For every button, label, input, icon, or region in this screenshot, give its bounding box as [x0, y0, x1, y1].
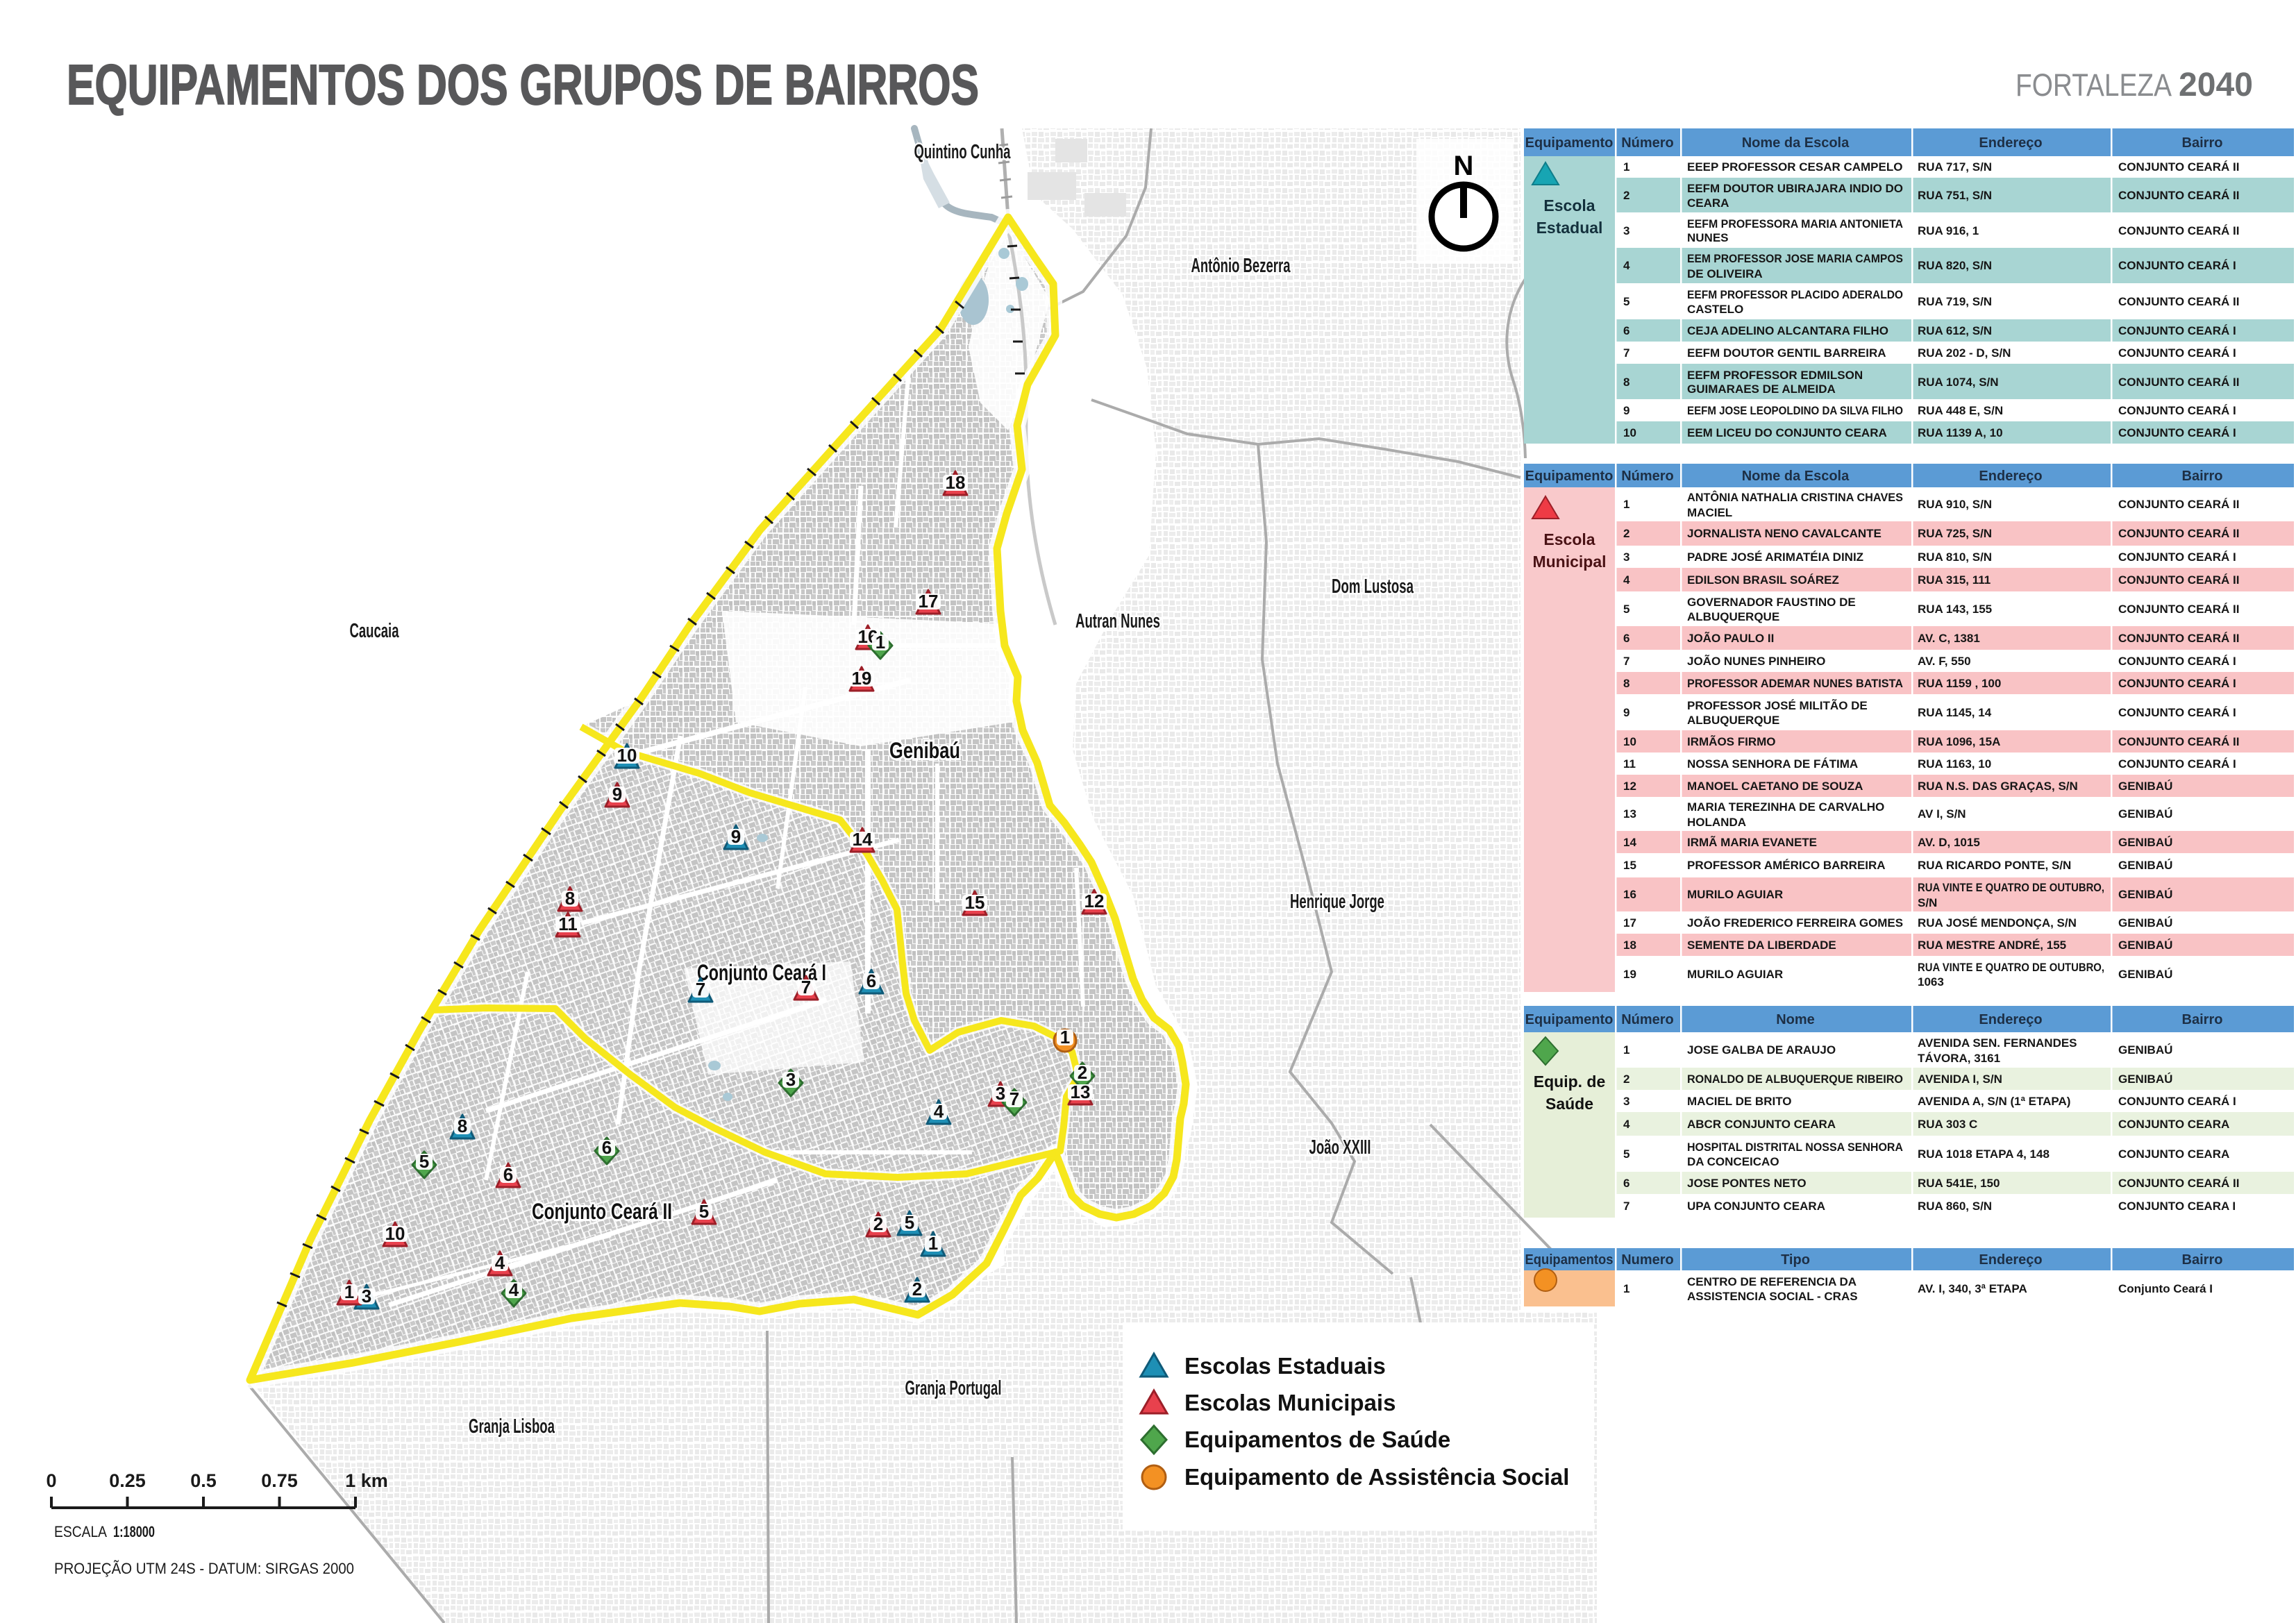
svg-text:Número: Número — [1621, 1012, 1674, 1027]
svg-text:ALBUQUERQUE: ALBUQUERQUE — [1687, 610, 1779, 623]
svg-text:5: 5 — [1623, 295, 1629, 308]
svg-text:EEFM JOSE LEOPOLDINO DA SILVA: EEFM JOSE LEOPOLDINO DA SILVA FILHO — [1687, 404, 1903, 417]
svg-text:Conjunto Ceará II: Conjunto Ceará II — [532, 1199, 672, 1224]
svg-text:5: 5 — [1623, 1147, 1629, 1161]
svg-text:13: 13 — [1623, 807, 1636, 821]
svg-text:GOVERNADOR FAUSTINO DE: GOVERNADOR FAUSTINO DE — [1687, 596, 1856, 609]
svg-text:19: 19 — [852, 668, 872, 689]
svg-text:10: 10 — [617, 745, 637, 766]
svg-text:Endereço: Endereço — [1979, 1252, 2042, 1268]
svg-text:RUA JOSÉ MENDONÇA, S/N: RUA JOSÉ MENDONÇA, S/N — [1918, 916, 2077, 930]
svg-text:MANOEL CAETANO DE SOUZA: MANOEL CAETANO DE SOUZA — [1687, 780, 1863, 793]
svg-text:RUA 820, S/N: RUA 820, S/N — [1918, 259, 1992, 272]
svg-text:CONJUNTO CEARÁ I: CONJUNTO CEARÁ I — [2118, 1095, 2236, 1108]
svg-text:5: 5 — [419, 1151, 429, 1172]
svg-text:4: 4 — [934, 1101, 944, 1122]
svg-text:0.25: 0.25 — [109, 1470, 146, 1491]
svg-text:AV I, S/N: AV I, S/N — [1918, 807, 1966, 821]
svg-text:PROFESSOR JOSÉ MILITÃO DE: PROFESSOR JOSÉ MILITÃO DE — [1687, 698, 1868, 712]
svg-text:TÁVORA, 3161: TÁVORA, 3161 — [1918, 1052, 2000, 1065]
svg-text:4: 4 — [495, 1252, 505, 1273]
svg-text:Bairro: Bairro — [2182, 1252, 2223, 1268]
svg-text:2: 2 — [873, 1213, 883, 1234]
svg-text:Nome da Escola: Nome da Escola — [1742, 469, 1850, 484]
svg-text:GUIMARAES DE ALMEIDA: GUIMARAES DE ALMEIDA — [1687, 382, 1836, 396]
svg-text:Equip. de: Equip. de — [1534, 1073, 1606, 1091]
svg-text:DA CONCEICAO: DA CONCEICAO — [1687, 1155, 1779, 1168]
svg-text:Dom Lustosa: Dom Lustosa — [1332, 575, 1414, 598]
svg-text:MACIEL: MACIEL — [1687, 506, 1732, 519]
svg-text:Tipo: Tipo — [1781, 1252, 1810, 1268]
svg-text:4: 4 — [1623, 573, 1630, 587]
svg-text:16: 16 — [1623, 888, 1636, 901]
svg-text:1 km: 1 km — [345, 1470, 388, 1491]
svg-text:EQUIPAMENTOS DOS GRUPOS DE BAI: EQUIPAMENTOS DOS GRUPOS DE BAIRROS — [67, 53, 979, 117]
svg-text:Caucaia: Caucaia — [350, 620, 400, 642]
svg-text:7: 7 — [1009, 1088, 1019, 1109]
svg-text:Quintino Cunha: Quintino Cunha — [914, 141, 1012, 163]
svg-text:EEFM PROFESSORA MARIA ANTONIET: EEFM PROFESSORA MARIA ANTONIETA — [1687, 217, 1903, 230]
svg-text:Granja Portugal: Granja Portugal — [905, 1377, 1002, 1399]
svg-text:RUA 717, S/N: RUA 717, S/N — [1918, 160, 1992, 174]
svg-text:GENIBAÚ: GENIBAÚ — [2118, 1073, 2172, 1086]
svg-text:1: 1 — [1623, 160, 1629, 174]
svg-text:3: 3 — [786, 1069, 796, 1090]
svg-text:JORNALISTA NENO CAVALCANTE: JORNALISTA NENO CAVALCANTE — [1687, 527, 1882, 540]
svg-text:1: 1 — [875, 632, 885, 653]
svg-text:EEEP PROFESSOR CESAR CAMPELO: EEEP PROFESSOR CESAR CAMPELO — [1687, 160, 1902, 174]
svg-text:1:18000: 1:18000 — [113, 1523, 155, 1540]
svg-text:17: 17 — [1623, 916, 1636, 930]
svg-text:3: 3 — [1623, 224, 1629, 237]
svg-text:GENIBAÚ: GENIBAÚ — [2118, 968, 2172, 981]
svg-text:4: 4 — [1623, 1118, 1630, 1131]
svg-text:CONJUNTO CEARÁ II: CONJUNTO CEARÁ II — [2118, 735, 2239, 748]
svg-text:RUA 719, S/N: RUA 719, S/N — [1918, 295, 1992, 308]
svg-text:Antônio Bezerra: Antônio Bezerra — [1191, 255, 1291, 277]
svg-text:Endereço: Endereço — [1979, 135, 2042, 151]
svg-text:2: 2 — [1623, 189, 1629, 202]
svg-text:NUNES: NUNES — [1687, 231, 1729, 244]
svg-text:RUA 1096, 15A: RUA 1096, 15A — [1918, 735, 2000, 748]
svg-text:AV. C, 1381: AV. C, 1381 — [1918, 632, 1980, 645]
svg-text:João XXIII: João XXIII — [1309, 1136, 1371, 1159]
svg-text:RUA RICARDO PONTE, S/N: RUA RICARDO PONTE, S/N — [1918, 859, 2071, 872]
svg-text:EEFM PROFESSOR PLACIDO ADERALD: EEFM PROFESSOR PLACIDO ADERALDO — [1687, 288, 1903, 301]
svg-text:Escola: Escola — [1543, 196, 1595, 215]
svg-text:9: 9 — [731, 826, 741, 847]
svg-text:Henrique Jorge: Henrique Jorge — [1290, 891, 1384, 913]
svg-text:4: 4 — [1623, 259, 1630, 272]
svg-text:7: 7 — [696, 979, 705, 1000]
svg-text:8: 8 — [1623, 376, 1629, 389]
svg-text:2: 2 — [1078, 1062, 1087, 1083]
svg-text:15: 15 — [1623, 859, 1636, 872]
svg-text:CONJUNTO CEARÁ II: CONJUNTO CEARÁ II — [2118, 573, 2239, 587]
svg-text:18: 18 — [946, 472, 966, 493]
svg-text:JOÃO NUNES PINHEIRO: JOÃO NUNES PINHEIRO — [1687, 654, 1825, 668]
svg-text:1: 1 — [1623, 1282, 1629, 1295]
svg-text:12: 12 — [1084, 891, 1105, 911]
svg-text:EEFM DOUTOR GENTIL BARREIRA: EEFM DOUTOR GENTIL BARREIRA — [1687, 346, 1886, 360]
svg-text:5: 5 — [905, 1212, 914, 1233]
svg-text:CONJUNTO CEARÁ I: CONJUNTO CEARÁ I — [2118, 324, 2236, 337]
svg-text:CONJUNTO CEARÁ II: CONJUNTO CEARÁ II — [2118, 376, 2239, 389]
svg-text:RUA 916, 1: RUA 916, 1 — [1918, 224, 1979, 237]
svg-text:RUA 860, S/N: RUA 860, S/N — [1918, 1200, 1992, 1213]
svg-text:11: 11 — [1623, 757, 1636, 771]
svg-text:5: 5 — [699, 1201, 709, 1222]
svg-text:3: 3 — [996, 1083, 1005, 1104]
svg-text:Saúde: Saúde — [1545, 1095, 1593, 1113]
svg-text:AVENIDA I, S/N: AVENIDA I, S/N — [1918, 1073, 2002, 1086]
svg-text:RUA 810, S/N: RUA 810, S/N — [1918, 550, 1992, 564]
svg-text:MACIEL DE BRITO: MACIEL DE BRITO — [1687, 1095, 1792, 1108]
svg-text:JOSE GALBA DE ARAUJO: JOSE GALBA DE ARAUJO — [1687, 1043, 1836, 1057]
svg-text:Genibaú: Genibaú — [889, 738, 960, 763]
svg-text:Numero: Numero — [1621, 1252, 1674, 1268]
svg-text:EEFM DOUTOR UBIRAJARA INDIO DO: EEFM DOUTOR UBIRAJARA INDIO DO — [1687, 182, 1903, 195]
svg-text:7: 7 — [1623, 1200, 1629, 1213]
svg-text:6: 6 — [1623, 632, 1629, 645]
svg-text:3: 3 — [1623, 1095, 1629, 1108]
svg-text:Equipamentos: Equipamentos — [1525, 1252, 1614, 1268]
svg-text:EEFM PROFESSOR EDMILSON: EEFM PROFESSOR EDMILSON — [1687, 369, 1863, 382]
svg-text:EEM PROFESSOR JOSE MARIA CAMPO: EEM PROFESSOR JOSE MARIA CAMPOS — [1687, 252, 1903, 265]
svg-text:SEMENTE DA LIBERDADE: SEMENTE DA LIBERDADE — [1687, 939, 1836, 952]
svg-text:0.75: 0.75 — [261, 1470, 298, 1491]
svg-text:CONJUNTO CEARÁ I: CONJUNTO CEARÁ I — [2118, 677, 2236, 690]
svg-text:Estadual: Estadual — [1536, 219, 1603, 237]
svg-text:RUA 448 E, S/N: RUA 448 E, S/N — [1918, 404, 2003, 417]
svg-text:RUA 202 - D, S/N: RUA 202 - D, S/N — [1918, 346, 2011, 360]
svg-text:CENTRO DE REFERENCIA DA: CENTRO DE REFERENCIA DA — [1687, 1275, 1857, 1288]
svg-text:PADRE JOSÉ ARIMATÉIA DINIZ: PADRE JOSÉ ARIMATÉIA DINIZ — [1687, 550, 1863, 564]
svg-text:CONJUNTO CEARÁ II: CONJUNTO CEARÁ II — [2118, 295, 2239, 308]
svg-text:AV. D, 1015: AV. D, 1015 — [1918, 836, 1980, 849]
svg-text:ANTÔNIA NATHALIA CRISTINA CHAV: ANTÔNIA NATHALIA CRISTINA CHAVES — [1687, 491, 1903, 504]
svg-text:RUA 143, 155: RUA 143, 155 — [1918, 603, 1992, 616]
svg-text:AVENIDA SEN. FERNANDES: AVENIDA SEN. FERNANDES — [1918, 1036, 2077, 1050]
svg-text:CONJUNTO CEARA I: CONJUNTO CEARA I — [2118, 1200, 2236, 1213]
svg-text:GENIBAÚ: GENIBAÚ — [2118, 939, 2172, 952]
svg-text:GENIBAÚ: GENIBAÚ — [2118, 780, 2172, 793]
svg-text:10: 10 — [385, 1223, 405, 1244]
svg-text:ABCR CONJUNTO CEARA: ABCR CONJUNTO CEARA — [1687, 1118, 1836, 1131]
svg-text:RUA 1159 , 100: RUA 1159 , 100 — [1918, 677, 2001, 690]
svg-text:6: 6 — [602, 1137, 612, 1158]
svg-text:EEM LICEU DO CONJUNTO CEARA: EEM LICEU DO CONJUNTO CEARA — [1687, 426, 1887, 439]
svg-text:6: 6 — [503, 1164, 513, 1185]
svg-text:CONJUNTO CEARÁ I: CONJUNTO CEARÁ I — [2118, 259, 2236, 272]
svg-text:CONJUNTO CEARÁ I: CONJUNTO CEARÁ I — [2118, 346, 2236, 360]
svg-text:CONJUNTO CEARÁ II: CONJUNTO CEARÁ II — [2118, 632, 2239, 645]
svg-text:CONJUNTO CEARÁ II: CONJUNTO CEARÁ II — [2118, 498, 2239, 511]
svg-text:GENIBAÚ: GENIBAÚ — [2118, 859, 2172, 872]
svg-text:RUA 541E, 150: RUA 541E, 150 — [1918, 1177, 2000, 1190]
svg-text:3: 3 — [1623, 550, 1629, 564]
svg-text:Equipamento: Equipamento — [1525, 1012, 1614, 1027]
svg-text:RUA MESTRE ANDRÉ, 155: RUA MESTRE ANDRÉ, 155 — [1918, 939, 2066, 952]
svg-text:PROFESSOR AMÉRICO BARREIRA: PROFESSOR AMÉRICO BARREIRA — [1687, 859, 1886, 872]
svg-text:13: 13 — [1071, 1082, 1091, 1102]
svg-text:PROJEÇÃO UTM 24S - DATUM: SIRG: PROJEÇÃO UTM 24S - DATUM: SIRGAS 2000 — [54, 1560, 354, 1577]
svg-text:1: 1 — [928, 1233, 938, 1254]
svg-text:17: 17 — [919, 591, 939, 612]
svg-text:RUA 303 C: RUA 303 C — [1918, 1118, 1977, 1131]
svg-text:CONJUNTO CEARÁ I: CONJUNTO CEARÁ I — [2118, 655, 2236, 668]
svg-text:CONJUNTO CEARA: CONJUNTO CEARA — [2118, 1118, 2229, 1131]
svg-text:GENIBAÚ: GENIBAÚ — [2118, 836, 2172, 849]
svg-text:6: 6 — [1623, 324, 1629, 337]
svg-text:CONJUNTO CEARÁ I: CONJUNTO CEARÁ I — [2118, 550, 2236, 564]
svg-text:RUA 1145, 14: RUA 1145, 14 — [1918, 706, 1992, 719]
svg-text:RUA 1018 ETAPA 4, 148: RUA 1018 ETAPA 4, 148 — [1918, 1147, 2050, 1161]
svg-text:Escolas Estaduais: Escolas Estaduais — [1184, 1353, 1386, 1379]
svg-text:GENIBAÚ: GENIBAÚ — [2118, 888, 2172, 901]
svg-text:1: 1 — [1623, 1043, 1629, 1057]
svg-text:DE OLIVEIRA: DE OLIVEIRA — [1687, 267, 1763, 280]
svg-text:6: 6 — [1623, 1177, 1629, 1190]
svg-text:18: 18 — [1623, 939, 1636, 952]
svg-text:GENIBAÚ: GENIBAÚ — [2118, 807, 2172, 821]
svg-text:Nome: Nome — [1776, 1012, 1815, 1027]
svg-text:NOSSA SENHORA DE FÁTIMA: NOSSA SENHORA DE FÁTIMA — [1687, 757, 1858, 771]
svg-text:MURILO AGUIAR: MURILO AGUIAR — [1687, 888, 1783, 901]
svg-text:1: 1 — [1060, 1027, 1070, 1048]
svg-text:Nome da Escola: Nome da Escola — [1742, 135, 1850, 151]
svg-text:RUA VINTE E QUATRO DE OUTUBRO,: RUA VINTE E QUATRO DE OUTUBRO, — [1918, 961, 2104, 974]
svg-text:CONJUNTO CEARÁ I: CONJUNTO CEARÁ I — [2118, 706, 2236, 719]
svg-text:Autran Nunes: Autran Nunes — [1075, 610, 1160, 632]
svg-text:EDILSON BRASIL SOÁREZ: EDILSON BRASIL SOÁREZ — [1687, 573, 1839, 587]
svg-text:Número: Número — [1621, 135, 1674, 151]
svg-text:4: 4 — [509, 1279, 519, 1300]
svg-text:RUA 725, S/N: RUA 725, S/N — [1918, 527, 1992, 540]
svg-text:S/N: S/N — [1918, 896, 1937, 909]
svg-text:JOÃO FREDERICO FERREIRA GOMES: JOÃO FREDERICO FERREIRA GOMES — [1687, 916, 1903, 930]
svg-text:CONJUNTO CEARÁ I: CONJUNTO CEARÁ I — [2118, 426, 2236, 439]
svg-text:19: 19 — [1623, 968, 1636, 981]
svg-text:RONALDO DE ALBUQUERQUE RIBEIRO: RONALDO DE ALBUQUERQUE RIBEIRO — [1687, 1073, 1903, 1086]
svg-text:5: 5 — [1623, 603, 1629, 616]
svg-text:2: 2 — [912, 1279, 922, 1300]
svg-text:0: 0 — [46, 1470, 56, 1491]
svg-text:9: 9 — [612, 784, 622, 805]
svg-text:RUA 751, S/N: RUA 751, S/N — [1918, 189, 1992, 202]
svg-text:FORTALEZA: FORTALEZA — [2016, 67, 2172, 103]
svg-text:ASSISTENCIA SOCIAL - CRAS: ASSISTENCIA SOCIAL - CRAS — [1687, 1290, 1858, 1303]
svg-text:RUA 1163, 10: RUA 1163, 10 — [1918, 757, 1991, 771]
svg-text:Endereço: Endereço — [1979, 469, 2042, 484]
svg-text:GENIBAÚ: GENIBAÚ — [2118, 1043, 2172, 1057]
svg-text:RUA 910, S/N: RUA 910, S/N — [1918, 498, 1992, 511]
svg-text:Conjunto Ceará I: Conjunto Ceará I — [2118, 1282, 2213, 1295]
svg-text:14: 14 — [1623, 836, 1636, 849]
svg-text:7: 7 — [1623, 655, 1629, 668]
svg-text:8: 8 — [1623, 677, 1629, 690]
svg-text:7: 7 — [1623, 346, 1629, 360]
svg-text:RUA VINTE E QUATRO DE OUTUBRO,: RUA VINTE E QUATRO DE OUTUBRO, — [1918, 881, 2104, 894]
svg-text:CONJUNTO CEARA: CONJUNTO CEARA — [2118, 1147, 2229, 1161]
svg-text:AV. F, 550: AV. F, 550 — [1918, 655, 1971, 668]
svg-text:JOSE PONTES NETO: JOSE PONTES NETO — [1687, 1177, 1807, 1190]
svg-text:3: 3 — [362, 1286, 371, 1306]
svg-text:HOLANDA: HOLANDA — [1687, 816, 1746, 829]
svg-text:CONJUNTO CEARÁ I: CONJUNTO CEARÁ I — [2118, 757, 2236, 771]
svg-text:CONJUNTO CEARÁ II: CONJUNTO CEARÁ II — [2118, 527, 2239, 540]
svg-text:GENIBAÚ: GENIBAÚ — [2118, 916, 2172, 930]
svg-text:2: 2 — [1623, 527, 1629, 540]
svg-text:Bairro: Bairro — [2182, 135, 2223, 151]
svg-text:Endereço: Endereço — [1979, 1012, 2042, 1027]
svg-text:IRMÃ MARIA EVANETE: IRMÃ MARIA EVANETE — [1687, 835, 1817, 849]
svg-text:CONJUNTO CEARÁ I: CONJUNTO CEARÁ I — [2118, 404, 2236, 417]
svg-text:10: 10 — [1623, 426, 1636, 439]
svg-text:CEJA ADELINO ALCANTARA FILHO: CEJA ADELINO ALCANTARA FILHO — [1687, 324, 1888, 337]
svg-text:Granja Lisboa: Granja Lisboa — [469, 1415, 555, 1438]
svg-text:N: N — [1454, 151, 1474, 181]
svg-text:11: 11 — [558, 914, 578, 934]
svg-text:8: 8 — [565, 888, 575, 909]
svg-text:14: 14 — [853, 829, 873, 850]
svg-text:Municipal: Municipal — [1532, 553, 1606, 571]
svg-text:JOÃO PAULO II: JOÃO PAULO II — [1687, 631, 1774, 645]
svg-text:8: 8 — [458, 1116, 467, 1136]
svg-text:CEARA: CEARA — [1687, 196, 1729, 210]
svg-text:CONJUNTO CEARÁ II: CONJUNTO CEARÁ II — [2118, 1177, 2239, 1190]
svg-text:CONJUNTO CEARÁ II: CONJUNTO CEARÁ II — [2118, 224, 2239, 237]
svg-text:RUA N.S. DAS GRAÇAS, S/N: RUA N.S. DAS GRAÇAS, S/N — [1918, 780, 2078, 793]
svg-text:MARIA TEREZINHA DE CARVALHO: MARIA TEREZINHA DE CARVALHO — [1687, 800, 1884, 814]
svg-text:CONJUNTO CEARÁ II: CONJUNTO CEARÁ II — [2118, 160, 2239, 174]
svg-text:UPA CONJUNTO CEARA: UPA CONJUNTO CEARA — [1687, 1200, 1825, 1213]
svg-text:6: 6 — [866, 970, 876, 991]
svg-text:12: 12 — [1623, 780, 1636, 793]
svg-text:Escola: Escola — [1543, 530, 1595, 548]
svg-text:Bairro: Bairro — [2182, 469, 2223, 484]
svg-text:Equipamento: Equipamento — [1525, 469, 1614, 484]
svg-text:Número: Número — [1621, 469, 1674, 484]
svg-text:10: 10 — [1623, 735, 1636, 748]
svg-text:7: 7 — [801, 977, 811, 998]
svg-text:ESCALA: ESCALA — [54, 1523, 107, 1540]
svg-text:0.5: 0.5 — [190, 1470, 217, 1491]
svg-text:1: 1 — [1623, 498, 1629, 511]
svg-text:PROFESSOR ADEMAR NUNES BATISTA: PROFESSOR ADEMAR NUNES BATISTA — [1687, 677, 1903, 690]
svg-text:MURILO AGUIAR: MURILO AGUIAR — [1687, 968, 1783, 981]
svg-text:9: 9 — [1623, 404, 1629, 417]
svg-text:RUA 1139 A, 10: RUA 1139 A, 10 — [1918, 426, 2003, 439]
svg-text:RUA 612, S/N: RUA 612, S/N — [1918, 324, 1992, 337]
svg-text:RUA 315, 111: RUA 315, 111 — [1918, 573, 1991, 587]
svg-text:Equipamento de Assistência Soc: Equipamento de Assistência Social — [1184, 1464, 1569, 1490]
svg-text:1: 1 — [344, 1281, 354, 1302]
svg-text:CONJUNTO CEARÁ II: CONJUNTO CEARÁ II — [2118, 603, 2239, 616]
svg-text:9: 9 — [1623, 706, 1629, 719]
svg-text:1063: 1063 — [1918, 975, 1944, 989]
svg-text:AV. I, 340, 3ª ETAPA: AV. I, 340, 3ª ETAPA — [1918, 1282, 2027, 1295]
svg-text:Bairro: Bairro — [2182, 1012, 2223, 1027]
svg-text:15: 15 — [965, 892, 985, 913]
svg-text:AVENIDA A, S/N (1ª ETAPA): AVENIDA A, S/N (1ª ETAPA) — [1918, 1095, 2070, 1108]
svg-text:CASTELO: CASTELO — [1687, 303, 1743, 316]
svg-text:HOSPITAL DISTRITAL NOSSA SENHO: HOSPITAL DISTRITAL NOSSA SENHORA — [1687, 1141, 1903, 1154]
svg-text:IRMÃOS FIRMO: IRMÃOS FIRMO — [1687, 734, 1776, 748]
svg-text:2: 2 — [1623, 1073, 1629, 1086]
svg-text:CONJUNTO CEARÁ II: CONJUNTO CEARÁ II — [2118, 189, 2239, 202]
svg-text:Equipamento: Equipamento — [1525, 135, 1614, 151]
svg-text:ALBUQUERQUE: ALBUQUERQUE — [1687, 714, 1779, 727]
svg-text:Escolas Municipais: Escolas Municipais — [1184, 1390, 1396, 1415]
svg-text:RUA 1074, S/N: RUA 1074, S/N — [1918, 376, 1999, 389]
svg-text:2040: 2040 — [2179, 67, 2253, 103]
svg-text:Equipamentos de Saúde: Equipamentos de Saúde — [1184, 1427, 1450, 1452]
